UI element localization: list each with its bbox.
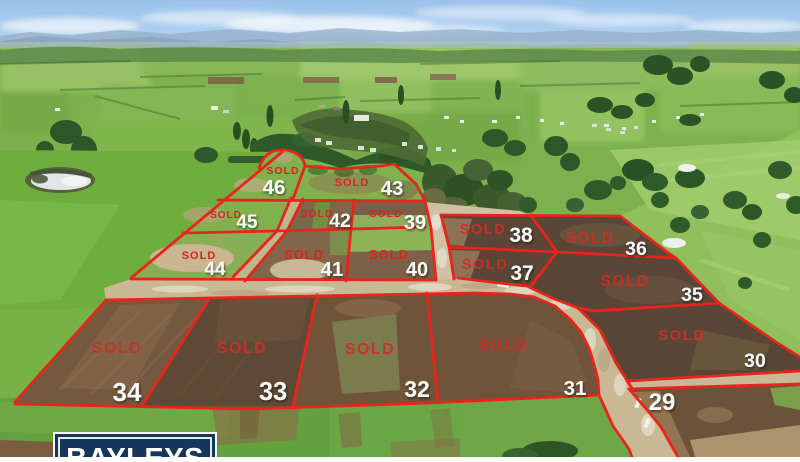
- svg-text:SOLD: SOLD: [565, 230, 614, 247]
- svg-text:SOLD: SOLD: [217, 340, 267, 357]
- svg-text:43: 43: [381, 177, 404, 200]
- svg-text:46: 46: [263, 176, 286, 199]
- svg-text:44: 44: [204, 259, 226, 280]
- svg-text:30: 30: [744, 350, 766, 372]
- svg-text:41: 41: [321, 258, 344, 281]
- svg-text:29: 29: [649, 389, 676, 416]
- svg-text:SOLD: SOLD: [345, 341, 395, 358]
- svg-text:SOLD: SOLD: [600, 273, 649, 290]
- svg-text:40: 40: [406, 259, 428, 281]
- svg-text:SOLD: SOLD: [658, 327, 706, 344]
- svg-text:SOLD: SOLD: [335, 177, 370, 189]
- svg-text:35: 35: [681, 284, 703, 306]
- svg-text:SOLD: SOLD: [92, 340, 142, 357]
- svg-text:BAYLEYS: BAYLEYS: [66, 443, 204, 457]
- svg-text:SOLD: SOLD: [369, 247, 409, 262]
- svg-text:34: 34: [113, 377, 142, 407]
- svg-text:36: 36: [625, 238, 647, 260]
- svg-text:SOLD: SOLD: [460, 222, 506, 238]
- svg-text:SOLD: SOLD: [369, 208, 402, 220]
- svg-text:38: 38: [509, 224, 533, 247]
- svg-text:SOLD: SOLD: [462, 257, 508, 273]
- svg-text:SOLD: SOLD: [284, 247, 324, 262]
- svg-text:45: 45: [236, 212, 258, 233]
- svg-text:39: 39: [404, 212, 426, 234]
- svg-text:42: 42: [329, 210, 351, 232]
- svg-text:SOLD: SOLD: [478, 337, 527, 354]
- svg-text:33: 33: [259, 378, 287, 406]
- svg-text:37: 37: [510, 262, 533, 285]
- svg-text:31: 31: [564, 377, 587, 400]
- svg-text:32: 32: [404, 376, 430, 402]
